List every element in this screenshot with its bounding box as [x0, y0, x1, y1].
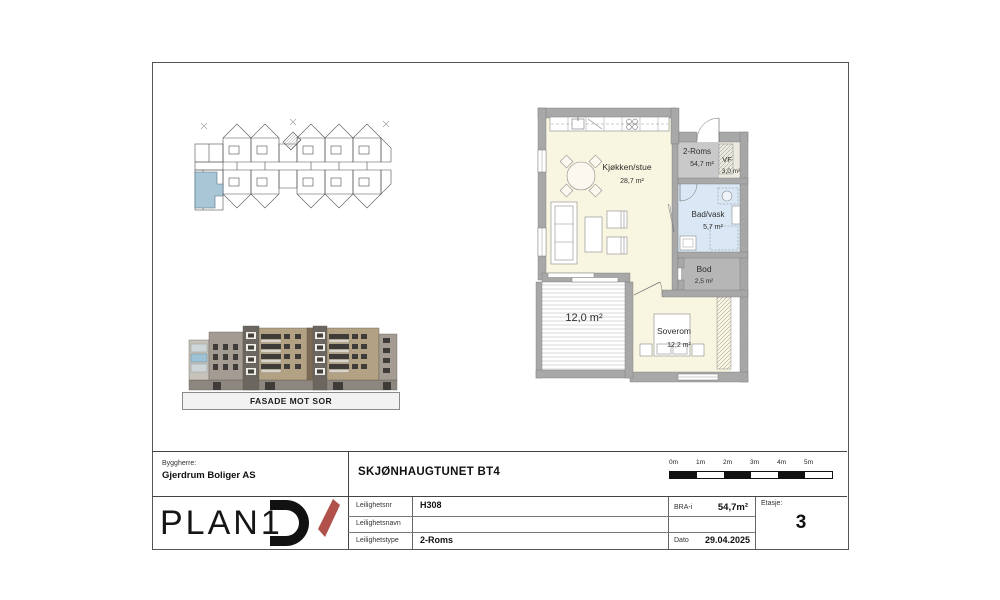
scale-segment: [724, 472, 751, 478]
bedroom-wardrobe: [717, 297, 731, 369]
scale-label: 2m: [723, 459, 732, 466]
dato-value: 29.04.2025: [668, 535, 750, 545]
byggherre-label: Byggherre:: [162, 460, 196, 467]
label-bod-area: 2,5 m²: [695, 278, 714, 285]
row-value-leilighetstype: 2-Roms: [420, 535, 453, 545]
scale-bar: 0m 1m 2m 3m 4m 5m: [669, 459, 839, 479]
entry-door: [697, 118, 719, 142]
label-bath-area: 5,7 m²: [703, 224, 724, 231]
scale-segment: [751, 472, 778, 478]
scale-label: 5m: [804, 459, 813, 466]
label-living-area: 28,7 m²: [620, 178, 644, 185]
titleblock-divider: [348, 452, 349, 549]
bathroom-sink-icon: [722, 191, 732, 201]
kitchen-counter: [550, 117, 669, 131]
label-bedroom-area: 12,2 m²: [667, 342, 691, 349]
party-wall-hatch: [740, 132, 748, 382]
facade-elevation: [183, 318, 403, 394]
titleblock-divider: [412, 496, 413, 549]
etasje-value: 3: [755, 512, 847, 534]
scale-label: 1m: [696, 459, 705, 466]
row-label-leilighetsnr: Leilighetsnr: [356, 502, 392, 509]
scale-label: 3m: [750, 459, 759, 466]
coffee-table-icon: [585, 217, 602, 252]
scale-segment: [670, 472, 697, 478]
label-unit-area: 54,7 m²: [690, 161, 714, 168]
scale-segment: [805, 472, 832, 478]
row-value-leilighetsnr: H308: [420, 500, 442, 510]
plan1-logo-mark: [270, 499, 314, 547]
scale-segment: [697, 472, 724, 478]
project-title: SKJØNHAUGTUNET BT4: [358, 466, 500, 478]
overview-top-units: [223, 124, 391, 162]
washing-machine-icon: [680, 236, 696, 250]
etasje-label: Etasje:: [761, 500, 782, 507]
byggherre-name: Gjerdrum Boliger AS: [162, 470, 256, 481]
apartment-floor-plan: Kjøkken/stue 28,7 m² 2-Roms 54,7 m² VF 3…: [534, 98, 756, 390]
nightstand-icon: [640, 344, 652, 356]
scale-label: 0m: [669, 459, 678, 466]
label-bath: Bad/vask: [692, 210, 726, 219]
scale-bar-segments: [669, 471, 833, 479]
overview-bottom-units: [223, 170, 391, 208]
titleblock-divider: [152, 496, 847, 497]
row-label-leilighetsnavn: Leilighetsnavn: [356, 520, 401, 527]
label-vf-area: 3,0 m²: [722, 168, 741, 175]
titleblock-divider: [348, 516, 755, 517]
facade-caption: FASADE MOT SOR: [182, 392, 400, 410]
scale-label: 4m: [777, 459, 786, 466]
building-overview-plan: [193, 118, 395, 214]
row-label-leilighetstype: Leilighetstype: [356, 537, 399, 544]
facade-caption-text: FASADE MOT SOR: [250, 396, 332, 406]
nightstand-icon: [692, 344, 704, 356]
facade-highlighted-balcony: [191, 354, 207, 362]
plan1-logo-flag: [314, 497, 342, 541]
overview-grid-crosses: [201, 119, 389, 129]
plan1-logo-text: PLAN1: [160, 504, 283, 543]
scale-segment: [778, 472, 805, 478]
bra-value: 54,7m²: [668, 502, 748, 513]
label-terrace-area: 12,0 m²: [565, 312, 603, 324]
logo-d-glyph: [270, 500, 309, 546]
label-unit-type: 2-Roms: [683, 147, 711, 156]
room-bod: [681, 258, 740, 290]
label-bod: Bod: [696, 264, 711, 274]
label-living: Kjøkken/stue: [602, 162, 651, 172]
label-bedroom: Soverom: [657, 326, 691, 336]
terrace-decking: [542, 282, 625, 370]
titleblock-divider: [348, 532, 755, 533]
logo-red-shape: [318, 499, 340, 537]
label-vf: VF: [722, 155, 732, 164]
sofa-icon: [551, 202, 577, 264]
bathroom-cabinet-icon: [732, 206, 740, 224]
overview-stair-core: [283, 132, 301, 150]
overview-highlighted-unit: [195, 172, 223, 208]
facade-left-balconies: [191, 344, 207, 372]
